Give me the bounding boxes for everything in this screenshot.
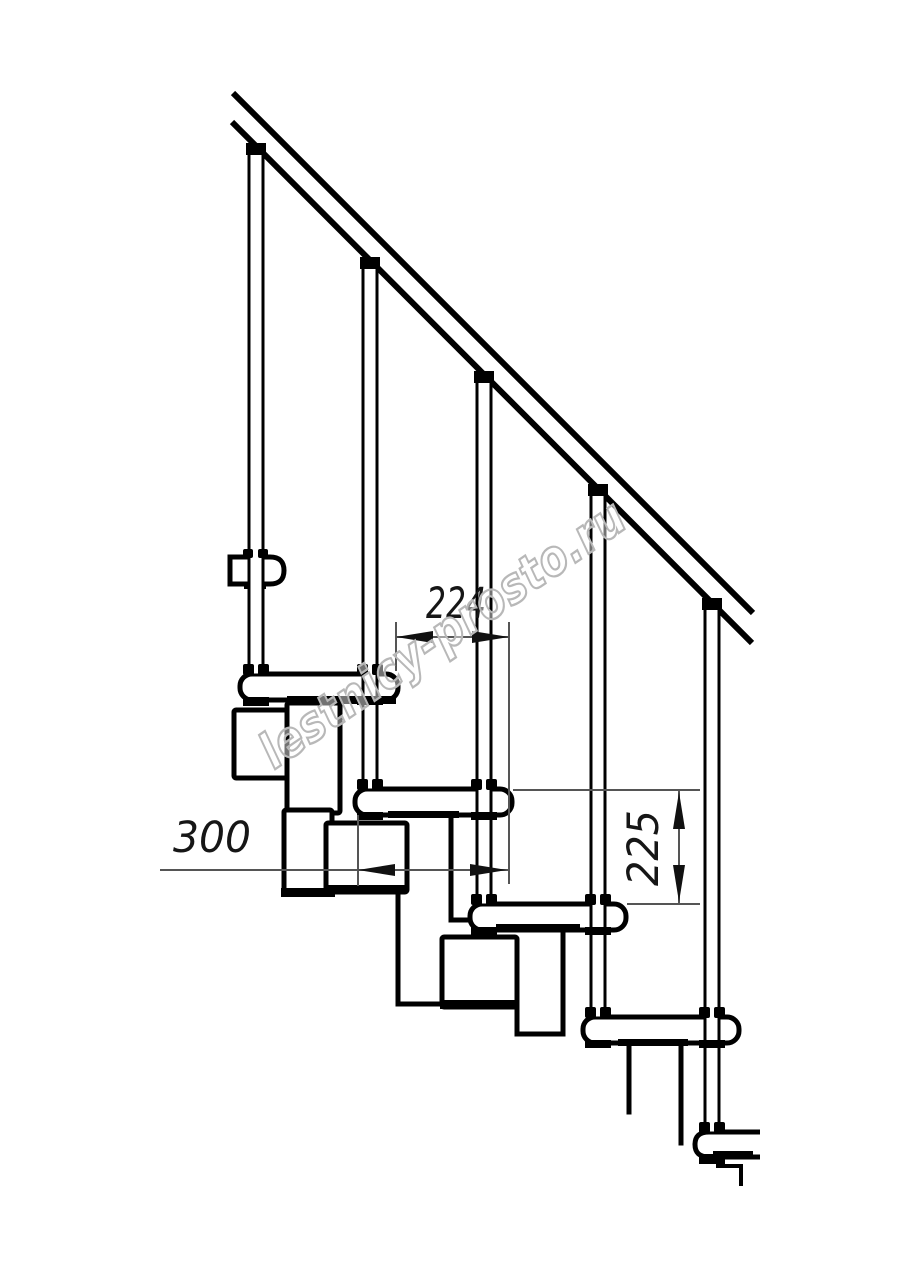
spine-box-under-tread3: [442, 937, 517, 1007]
baluster-4: [591, 493, 605, 1018]
arrow-225-down: [673, 865, 685, 902]
spine-duct-step3-left-edge: [398, 892, 444, 1004]
under-tread-strip: [618, 1039, 688, 1046]
collar-mark: [243, 549, 253, 558]
collar-mark: [714, 1007, 725, 1018]
baluster-5-cap: [702, 598, 722, 610]
collar-mark: [258, 549, 268, 558]
under-tread-strip: [496, 924, 580, 932]
arrow-225-up: [673, 792, 685, 829]
under-tread-strip: [713, 1151, 753, 1159]
under-tread-mark: [471, 812, 497, 820]
collar-mark: [699, 1007, 710, 1018]
collar-mark: [471, 894, 482, 905]
collar-mark: [585, 894, 596, 905]
watermark-text: lestnicy-prosto.ru: [249, 488, 637, 780]
under-tread-mark: [471, 927, 497, 935]
collar-mark: [600, 1007, 611, 1018]
collar-mark: [471, 779, 482, 790]
spine-duct-step4: [517, 929, 563, 1034]
collar-mark: [357, 779, 368, 790]
collar-mark: [600, 894, 611, 905]
collar-mark: [372, 779, 383, 790]
staircase-diagram: 224 300 225 lestnicy-prosto.ru: [0, 0, 914, 1280]
baluster-1: [249, 152, 263, 675]
collar-mark: [699, 1122, 710, 1133]
drawing-canvas: 224 300 225 lestnicy-prosto.ru: [0, 0, 914, 1280]
collar-mark: [714, 1122, 725, 1133]
baluster-3-cap: [474, 371, 494, 383]
baluster-5: [705, 607, 719, 1133]
collar-mark: [258, 664, 269, 675]
break-line: [716, 1166, 741, 1186]
under-tread-mark: [243, 697, 269, 706]
dim-label-225: 225: [619, 810, 669, 886]
collar-mark: [243, 664, 254, 675]
under-tread-mark: [699, 1040, 725, 1048]
under-tread-strip: [388, 811, 459, 818]
collar-mark: [585, 1007, 596, 1018]
under-tread-mark: [585, 927, 611, 935]
dim-label-300: 300: [173, 813, 251, 863]
under-tread-mark: [585, 1040, 611, 1048]
spine-box-tread2-bottom-plate: [326, 885, 407, 894]
collar-mark: [486, 779, 497, 790]
spine-box-tread3-bottom-plate: [440, 1000, 519, 1009]
baluster-2-cap: [360, 257, 380, 269]
collar-mark: [486, 894, 497, 905]
spine-box-under-tread2: [326, 823, 407, 892]
baluster-1-cap: [246, 143, 266, 155]
handrail-top-line: [233, 93, 753, 613]
under-tread-mark: [357, 812, 383, 820]
